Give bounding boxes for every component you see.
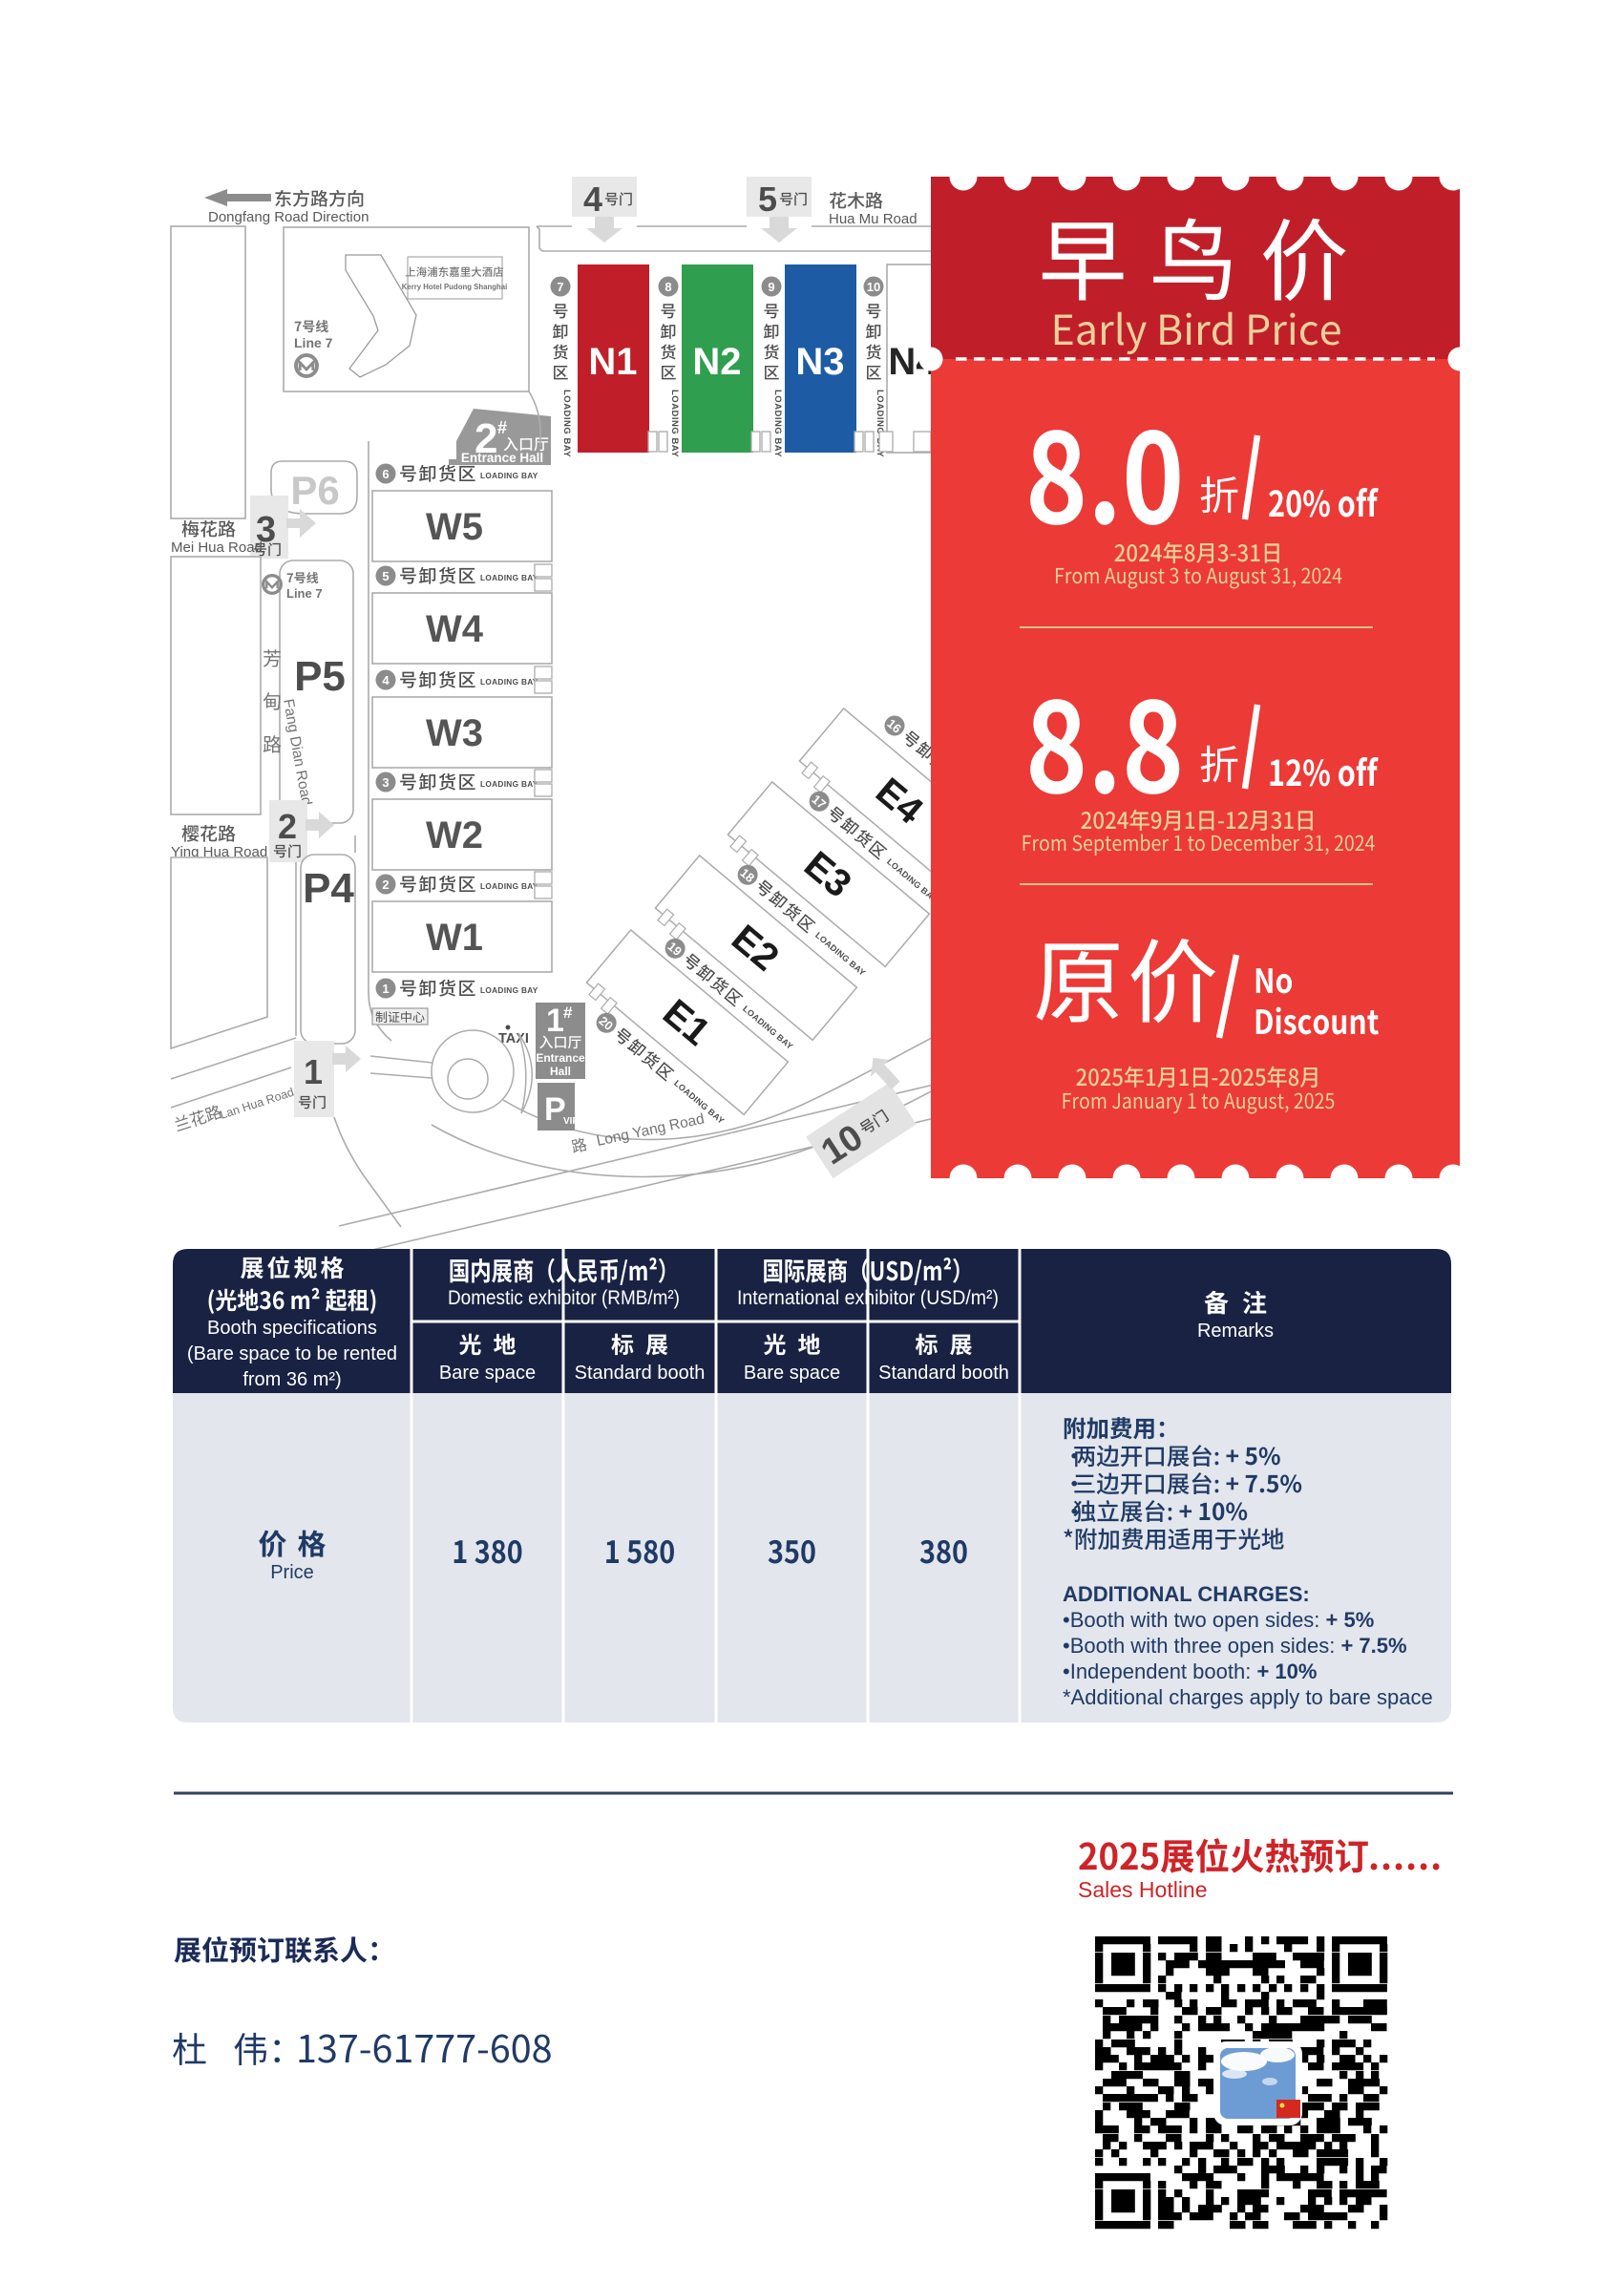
svg-text:W2: W2 bbox=[426, 814, 483, 856]
svg-text:Sales Hotline: Sales Hotline bbox=[1078, 1877, 1208, 1902]
svg-text:#: # bbox=[497, 418, 507, 437]
svg-text:Bare space: Bare space bbox=[439, 1363, 536, 1384]
svg-text:4: 4 bbox=[382, 673, 390, 687]
svg-text:2: 2 bbox=[382, 877, 389, 892]
svg-text:6: 6 bbox=[382, 467, 389, 481]
svg-text:*Additional charges apply to b: *Additional charges apply to bare space bbox=[1063, 1685, 1433, 1709]
svg-text:VIP: VIP bbox=[563, 1116, 579, 1127]
svg-text:1: 1 bbox=[304, 1052, 323, 1091]
svg-text:Entrance: Entrance bbox=[536, 1051, 585, 1065]
svg-text:LOADING BAY: LOADING BAY bbox=[480, 881, 538, 891]
svg-text:1: 1 bbox=[546, 1003, 564, 1039]
svg-text:Bare space: Bare space bbox=[744, 1363, 840, 1384]
svg-text:W3: W3 bbox=[426, 712, 483, 754]
svg-text:Mei Hua Road: Mei Hua Road bbox=[171, 539, 263, 556]
svg-text:Kerry Hotel Pudong Shanghai: Kerry Hotel Pudong Shanghai bbox=[402, 283, 507, 291]
svg-text:4: 4 bbox=[583, 180, 602, 219]
svg-text:Dongfang Road Direction: Dongfang Road Direction bbox=[208, 209, 369, 225]
svg-text:P4: P4 bbox=[303, 865, 354, 912]
svg-text:ADDITIONAL CHARGES:: ADDITIONAL CHARGES: bbox=[1063, 1582, 1310, 1606]
svg-text:Remarks: Remarks bbox=[1197, 1321, 1274, 1342]
svg-text:9: 9 bbox=[768, 280, 774, 294]
svg-text:8: 8 bbox=[664, 280, 671, 294]
svg-text:N2: N2 bbox=[692, 341, 741, 383]
svg-text:(Bare space to be rented: (Bare space to be rented bbox=[187, 1343, 397, 1364]
svg-text:P6: P6 bbox=[290, 468, 339, 513]
svg-text:LOADING BAY: LOADING BAY bbox=[480, 779, 538, 789]
svg-text:10: 10 bbox=[867, 280, 880, 294]
svg-text:LOADING BAY: LOADING BAY bbox=[480, 573, 538, 582]
svg-text:1: 1 bbox=[382, 982, 389, 996]
svg-text:2: 2 bbox=[278, 807, 297, 846]
svg-text:Entrance Hall: Entrance Hall bbox=[461, 451, 543, 465]
svg-text:LOADING BAY: LOADING BAY bbox=[480, 471, 538, 480]
svg-text:N1: N1 bbox=[588, 341, 637, 383]
svg-text:W1: W1 bbox=[426, 917, 483, 959]
svg-text:W5: W5 bbox=[426, 506, 483, 548]
svg-text:Line 7: Line 7 bbox=[286, 586, 323, 601]
svg-text:from 36 m²): from 36 m²) bbox=[243, 1369, 341, 1390]
svg-text:LOADING BAY: LOADING BAY bbox=[480, 985, 538, 995]
svg-text:LOADING BAY: LOADING BAY bbox=[480, 677, 538, 687]
svg-text:N3: N3 bbox=[795, 341, 844, 383]
svg-text:Hua Mu Road: Hua Mu Road bbox=[829, 211, 917, 227]
svg-text:•Booth with three open sides:: •Booth with three open sides: + 7.5% bbox=[1063, 1634, 1407, 1658]
svg-text:7: 7 bbox=[557, 280, 563, 294]
svg-text:Hall: Hall bbox=[550, 1065, 571, 1078]
svg-text:Standard booth: Standard booth bbox=[575, 1363, 706, 1384]
svg-text:3: 3 bbox=[382, 775, 389, 790]
svg-text:5: 5 bbox=[758, 180, 777, 219]
svg-text:Price: Price bbox=[270, 1562, 314, 1583]
svg-text:P5: P5 bbox=[294, 653, 346, 700]
svg-text:International exhibitor (USD/m: International exhibitor (USD/m²) bbox=[737, 1287, 999, 1309]
svg-text:#: # bbox=[563, 1004, 573, 1022]
svg-text:LOADING BAY: LOADING BAY bbox=[669, 390, 680, 457]
svg-text:5: 5 bbox=[382, 569, 389, 583]
svg-text:LOADING BAY: LOADING BAY bbox=[772, 390, 783, 457]
svg-text:Standard booth: Standard booth bbox=[878, 1363, 1009, 1384]
svg-text:LOADING BAY: LOADING BAY bbox=[561, 390, 572, 457]
svg-text:•Booth with two open sides: +: •Booth with two open sides: + 5% bbox=[1063, 1608, 1374, 1632]
svg-text:Booth specifications: Booth specifications bbox=[207, 1318, 377, 1339]
svg-text:•Independent booth: + 10%: •Independent booth: + 10% bbox=[1063, 1659, 1317, 1683]
svg-text:Line 7: Line 7 bbox=[294, 335, 333, 350]
svg-text:Domestic exhibitor (RMB/m²): Domestic exhibitor (RMB/m²) bbox=[448, 1287, 680, 1309]
svg-text:W4: W4 bbox=[426, 608, 484, 650]
